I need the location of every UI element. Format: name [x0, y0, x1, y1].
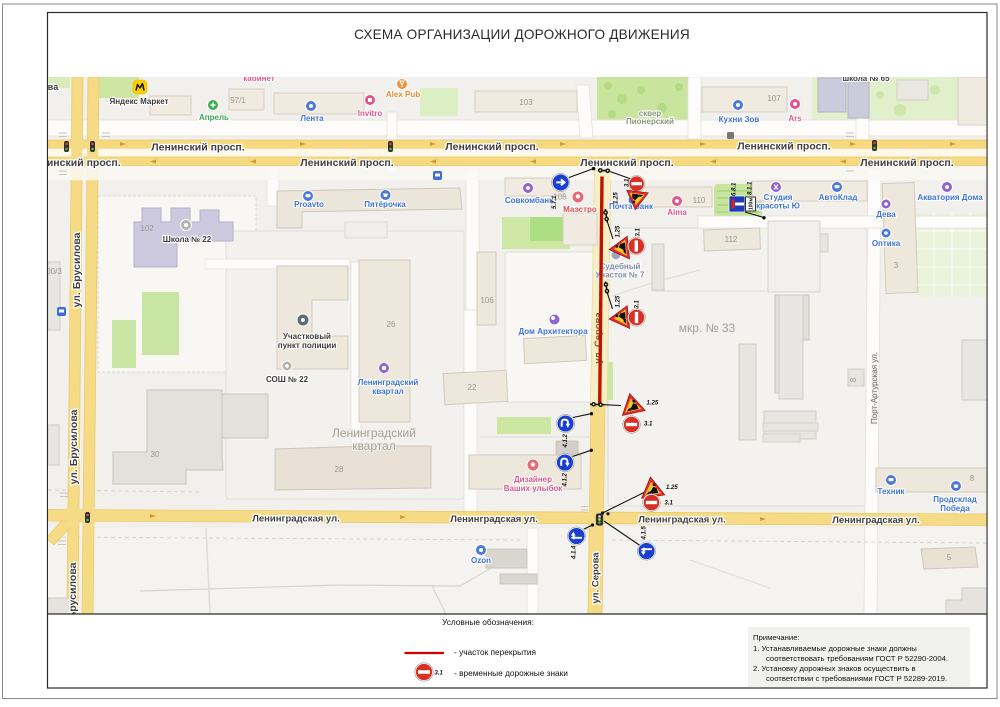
svg-text:соответствовать требованиям ГО: соответствовать требованиям ГОСТ Р 52290…: [766, 654, 948, 663]
svg-text:АвтоКлад: АвтоКлад: [819, 193, 858, 202]
svg-text:Победа: Победа: [940, 504, 970, 513]
svg-text:3.1: 3.1: [644, 422, 653, 428]
svg-text:103: 103: [519, 98, 533, 107]
svg-text:5.7.1: 5.7.1: [552, 195, 558, 209]
svg-text:6.8.1: 6.8.1: [732, 182, 738, 196]
svg-text:2. Установку дорожных знаков: 2. Установку дорожных знаков осуществить…: [753, 664, 916, 673]
svg-text:Лента: Лента: [300, 114, 324, 123]
svg-text:112: 112: [725, 235, 738, 244]
svg-text:106: 106: [480, 296, 494, 305]
svg-text:Акватория Дома: Акватория Дома: [917, 193, 983, 202]
svg-text:Оптика: Оптика: [872, 239, 901, 248]
svg-text:4.1.4: 4.1.4: [572, 545, 578, 560]
svg-text:Техник: Техник: [877, 487, 905, 496]
svg-text:4.1.2: 4.1.2: [563, 472, 569, 487]
svg-text:пункт полиции: пункт полиции: [278, 341, 337, 350]
svg-text:Дева: Дева: [876, 210, 896, 219]
svg-text:1.25: 1.25: [647, 401, 659, 407]
svg-text:Порт-Артурская ул.: Порт-Артурская ул.: [870, 352, 879, 424]
svg-text:30: 30: [151, 450, 160, 459]
svg-text:100м: 100м: [749, 198, 755, 210]
svg-text:1.25: 1.25: [666, 485, 678, 491]
svg-text:107: 107: [767, 94, 781, 103]
svg-text:3.1: 3.1: [636, 227, 642, 236]
svg-text:Участок № 7: Участок № 7: [595, 271, 645, 280]
svg-text:Ленинградский: Ленинградский: [358, 378, 419, 387]
svg-text:Alex Pub: Alex Pub: [386, 90, 420, 99]
svg-text:Пятёрочка: Пятёрочка: [364, 200, 406, 209]
svg-text:Маэстро: Маэстро: [563, 205, 597, 214]
svg-text:Примечание:: Примечание:: [753, 633, 800, 642]
svg-text:СОШ № 22: СОШ № 22: [266, 375, 309, 384]
svg-text:Ленинградская ул.: Ленинградская ул.: [450, 514, 538, 525]
svg-text:3.1: 3.1: [435, 671, 444, 677]
svg-text:ва: ва: [48, 82, 59, 92]
svg-text:Дом Архитектора: Дом Архитектора: [518, 327, 588, 336]
svg-text:Дизайнер: Дизайнер: [514, 475, 552, 484]
svg-text:Ленинградская ул.: Ленинградская ул.: [832, 515, 920, 526]
svg-text:Ленинградская ул.: Ленинградская ул.: [252, 514, 340, 525]
svg-text:4.1.5: 4.1.5: [642, 525, 648, 540]
svg-text:красоты Ю: красоты Ю: [756, 202, 800, 211]
svg-text:28: 28: [335, 465, 344, 474]
svg-text:Продсклад: Продсклад: [933, 495, 977, 504]
svg-text:Ленинградский: Ленинградский: [332, 426, 416, 440]
svg-text:22: 22: [468, 383, 477, 392]
svg-text:Пионерский: Пионерский: [626, 117, 674, 126]
svg-text:соответствии с требованиями ГО: соответствии с требованиями ГОСТ Р 52289…: [766, 674, 947, 683]
svg-text:Школа № 22: Школа № 22: [163, 235, 212, 244]
svg-text:Alma: Alma: [667, 208, 687, 217]
svg-text:- участок перекрытия: - участок перекрытия: [454, 647, 536, 657]
svg-text:Ленинский просп.: Ленинский просп.: [860, 157, 953, 169]
svg-text:Участковый: Участковый: [283, 332, 331, 341]
svg-text:3.1: 3.1: [625, 178, 631, 187]
svg-text:8: 8: [849, 377, 858, 382]
svg-text:квартал: квартал: [372, 387, 404, 396]
svg-text:26: 26: [387, 320, 396, 329]
svg-text:Кухни Зов: Кухни Зов: [719, 115, 760, 124]
svg-text:Ленинский просп.: Ленинский просп.: [445, 141, 538, 153]
svg-text:1.25: 1.25: [616, 295, 622, 307]
svg-text:Апрель: Апрель: [199, 113, 229, 122]
svg-text:Ars: Ars: [788, 114, 802, 123]
svg-text:Условные обозначения:: Условные обозначения:: [442, 617, 534, 627]
svg-text:СХЕМА ОРГАНИЗАЦИИ ДОРОЖНОГО Д: СХЕМА ОРГАНИЗАЦИИ ДОРОЖНОГО ДВИЖЕНИЯ: [354, 27, 690, 42]
svg-text:- временные дорожные знаки: - временные дорожные знаки: [454, 668, 568, 678]
svg-text:Ваших улыбок: Ваших улыбок: [504, 484, 564, 493]
svg-text:4.1.2: 4.1.2: [563, 433, 569, 448]
svg-text:5: 5: [947, 553, 952, 562]
svg-text:8: 8: [970, 474, 975, 483]
svg-text:Яндекс Маркет: Яндекс Маркет: [109, 97, 168, 106]
svg-text:ул. Брусилова: ул. Брусилова: [68, 409, 80, 484]
svg-text:Совкомбанк: Совкомбанк: [505, 196, 554, 205]
svg-text:ул. Серова: ул. Серова: [591, 552, 602, 604]
svg-text:квартал: квартал: [352, 439, 396, 453]
svg-text:3.1: 3.1: [635, 299, 641, 308]
svg-text:Ленинский просп.: Ленинский просп.: [737, 141, 830, 153]
svg-text:Ленинградская ул.: Ленинградская ул.: [638, 515, 726, 526]
svg-text:102: 102: [140, 224, 154, 233]
svg-text:3: 3: [894, 261, 899, 270]
svg-text:110: 110: [693, 196, 706, 205]
svg-text:Ленинский просп.: Ленинский просп.: [300, 157, 393, 169]
svg-text:97/1: 97/1: [230, 96, 246, 105]
svg-text:00/3: 00/3: [46, 267, 62, 276]
svg-text:Invitro: Invitro: [358, 109, 383, 118]
svg-text:8.1.1: 8.1.1: [748, 181, 754, 195]
svg-text:Ozon: Ozon: [471, 556, 491, 565]
svg-text:1. Устанавливаемые дорожные: 1. Устанавливаемые дорожные знаки должны: [753, 644, 917, 653]
svg-text:3.1: 3.1: [665, 501, 674, 507]
svg-text:Proavto: Proavto: [294, 200, 324, 209]
svg-text:1.25: 1.25: [614, 192, 620, 204]
svg-text:ул. Брусилова: ул. Брусилова: [71, 232, 83, 307]
svg-text:мкр. № 33: мкр. № 33: [679, 321, 736, 335]
svg-text:1.25: 1.25: [616, 225, 622, 237]
svg-text:Ленинский просп.: Ленинский просп.: [151, 142, 244, 154]
